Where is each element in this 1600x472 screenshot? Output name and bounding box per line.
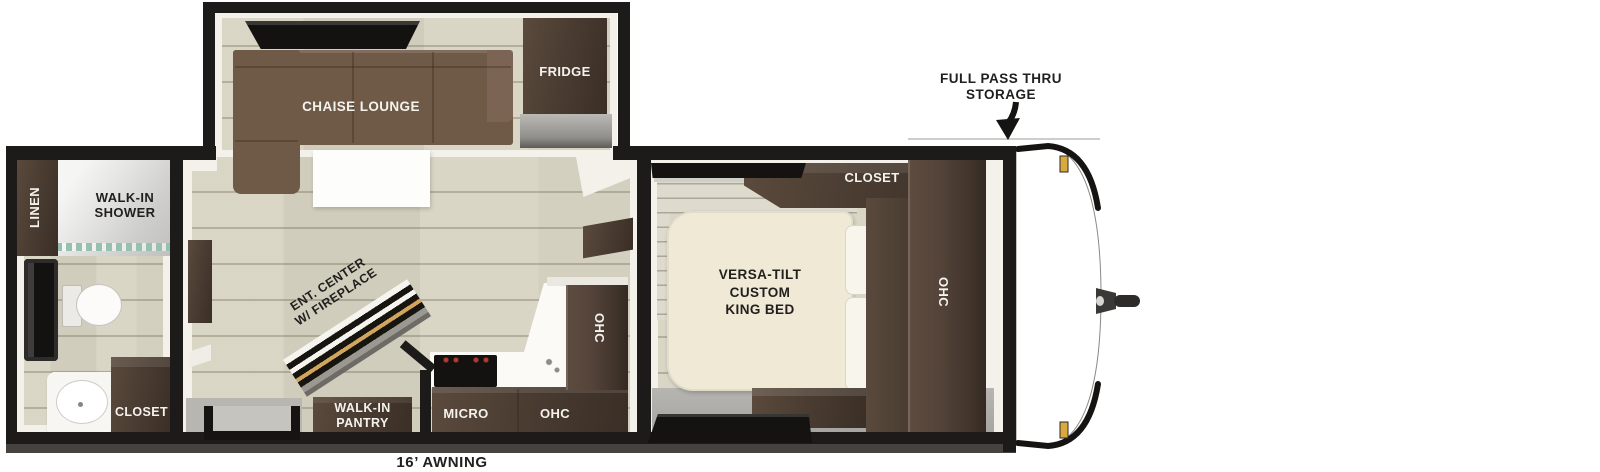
hitch-coupler — [1096, 296, 1104, 306]
slideout-wall-right — [618, 2, 630, 152]
ohc-tall-label: OHC — [585, 303, 607, 353]
slideout-window — [245, 21, 420, 49]
cooktop — [434, 355, 497, 387]
entry-door-mat[interactable] — [204, 406, 300, 440]
linen-label: LINEN — [27, 168, 49, 248]
kitchen-sink — [543, 356, 563, 376]
cap-marker-bottom — [1060, 422, 1068, 438]
front-cap-body — [1016, 145, 1101, 447]
bedroom-ohc-label: OHC — [929, 264, 951, 320]
kitchen-stub-wall — [420, 370, 431, 440]
wall-bedroom-front — [1003, 146, 1016, 452]
rv-floorplan: CHAISE LOUNGE FRIDGE ENT. CENTER W/ FIRE… — [0, 0, 1600, 472]
bathroom-window — [24, 259, 58, 361]
bed-label-line1: VERSA-TILT — [667, 266, 853, 284]
wall-top-left — [6, 146, 216, 160]
toilet-bowl — [76, 284, 122, 326]
bathroom-closet-label: CLOSET — [109, 405, 174, 420]
slideout-wall-left — [203, 2, 215, 152]
chaise-lounge-label: CHAISE LOUNGE — [286, 99, 436, 115]
pantry-label: WALK-IN PANTRY — [313, 401, 412, 431]
wall-bottom-shadow — [6, 444, 1016, 453]
bed-headboard — [866, 198, 912, 438]
bedroom-closet-label: CLOSET — [830, 170, 914, 185]
pantry-label-line1: WALK-IN — [313, 401, 412, 416]
pantry-label-line2: PANTRY — [313, 416, 412, 431]
hitch-tongue — [1114, 295, 1140, 307]
wall-bottom — [6, 432, 1016, 444]
wall-top-bedroom — [644, 146, 1016, 160]
bed-label-line3: KING BED — [667, 301, 853, 319]
storage-arrow-icon — [975, 95, 1035, 145]
cap-marker-top — [1060, 156, 1068, 172]
shower-label-line1: WALK-IN — [74, 190, 176, 205]
micro-label: MICRO — [430, 406, 502, 421]
storage-label-line1: FULL PASS THRU — [916, 71, 1086, 87]
awning-label: 16’ AWNING — [356, 454, 528, 472]
dinette-table — [313, 150, 430, 207]
ohc-base-label: OHC — [519, 406, 591, 421]
sofa-armrest — [487, 50, 513, 122]
slideout-wall-top — [203, 2, 630, 13]
fridge-counter — [520, 114, 612, 148]
wall-bedroom-divider — [637, 150, 651, 432]
chaise-lounge-chaise — [233, 50, 300, 194]
fridge-label: FRIDGE — [523, 64, 607, 79]
sink-drain — [78, 402, 83, 407]
tv-panel — [188, 240, 212, 323]
bedroom-window-top — [651, 163, 806, 178]
shower-label-line2: SHOWER — [74, 205, 176, 220]
bedroom-window-bottom — [648, 414, 812, 443]
bed-label-line2: CUSTOM — [667, 284, 853, 302]
front-cap — [1008, 130, 1148, 460]
bed-label: VERSA-TILT CUSTOM KING BED — [667, 266, 853, 319]
shower-glass — [56, 243, 170, 251]
bathroom-closet — [111, 357, 172, 434]
shower-label: WALK-IN SHOWER — [74, 190, 176, 221]
wall-left — [6, 146, 17, 444]
